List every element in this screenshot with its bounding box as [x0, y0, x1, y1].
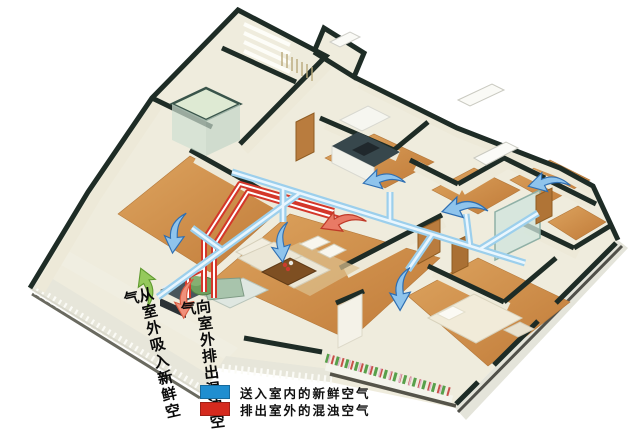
hall-radiator — [458, 84, 504, 106]
legend-item-fresh-air: 送入室内的新鲜空气 — [200, 385, 371, 399]
floorplan-illustration — [0, 0, 628, 438]
fresh-air-swatch — [200, 385, 230, 399]
exhaust-air-swatch — [200, 402, 230, 416]
exhaust-air-label: 排出室外的混浊空气 — [240, 400, 371, 419]
legend: 送入室内的新鲜空气 排出室外的混浊空气 — [200, 385, 371, 419]
ventilation-diagram: 从室外吸入新鲜空气 向室外排出混浊空气 送入室内的新鲜空气 排出室外的混浊空气 — [0, 0, 628, 438]
legend-item-exhaust-air: 排出室外的混浊空气 — [200, 402, 371, 416]
